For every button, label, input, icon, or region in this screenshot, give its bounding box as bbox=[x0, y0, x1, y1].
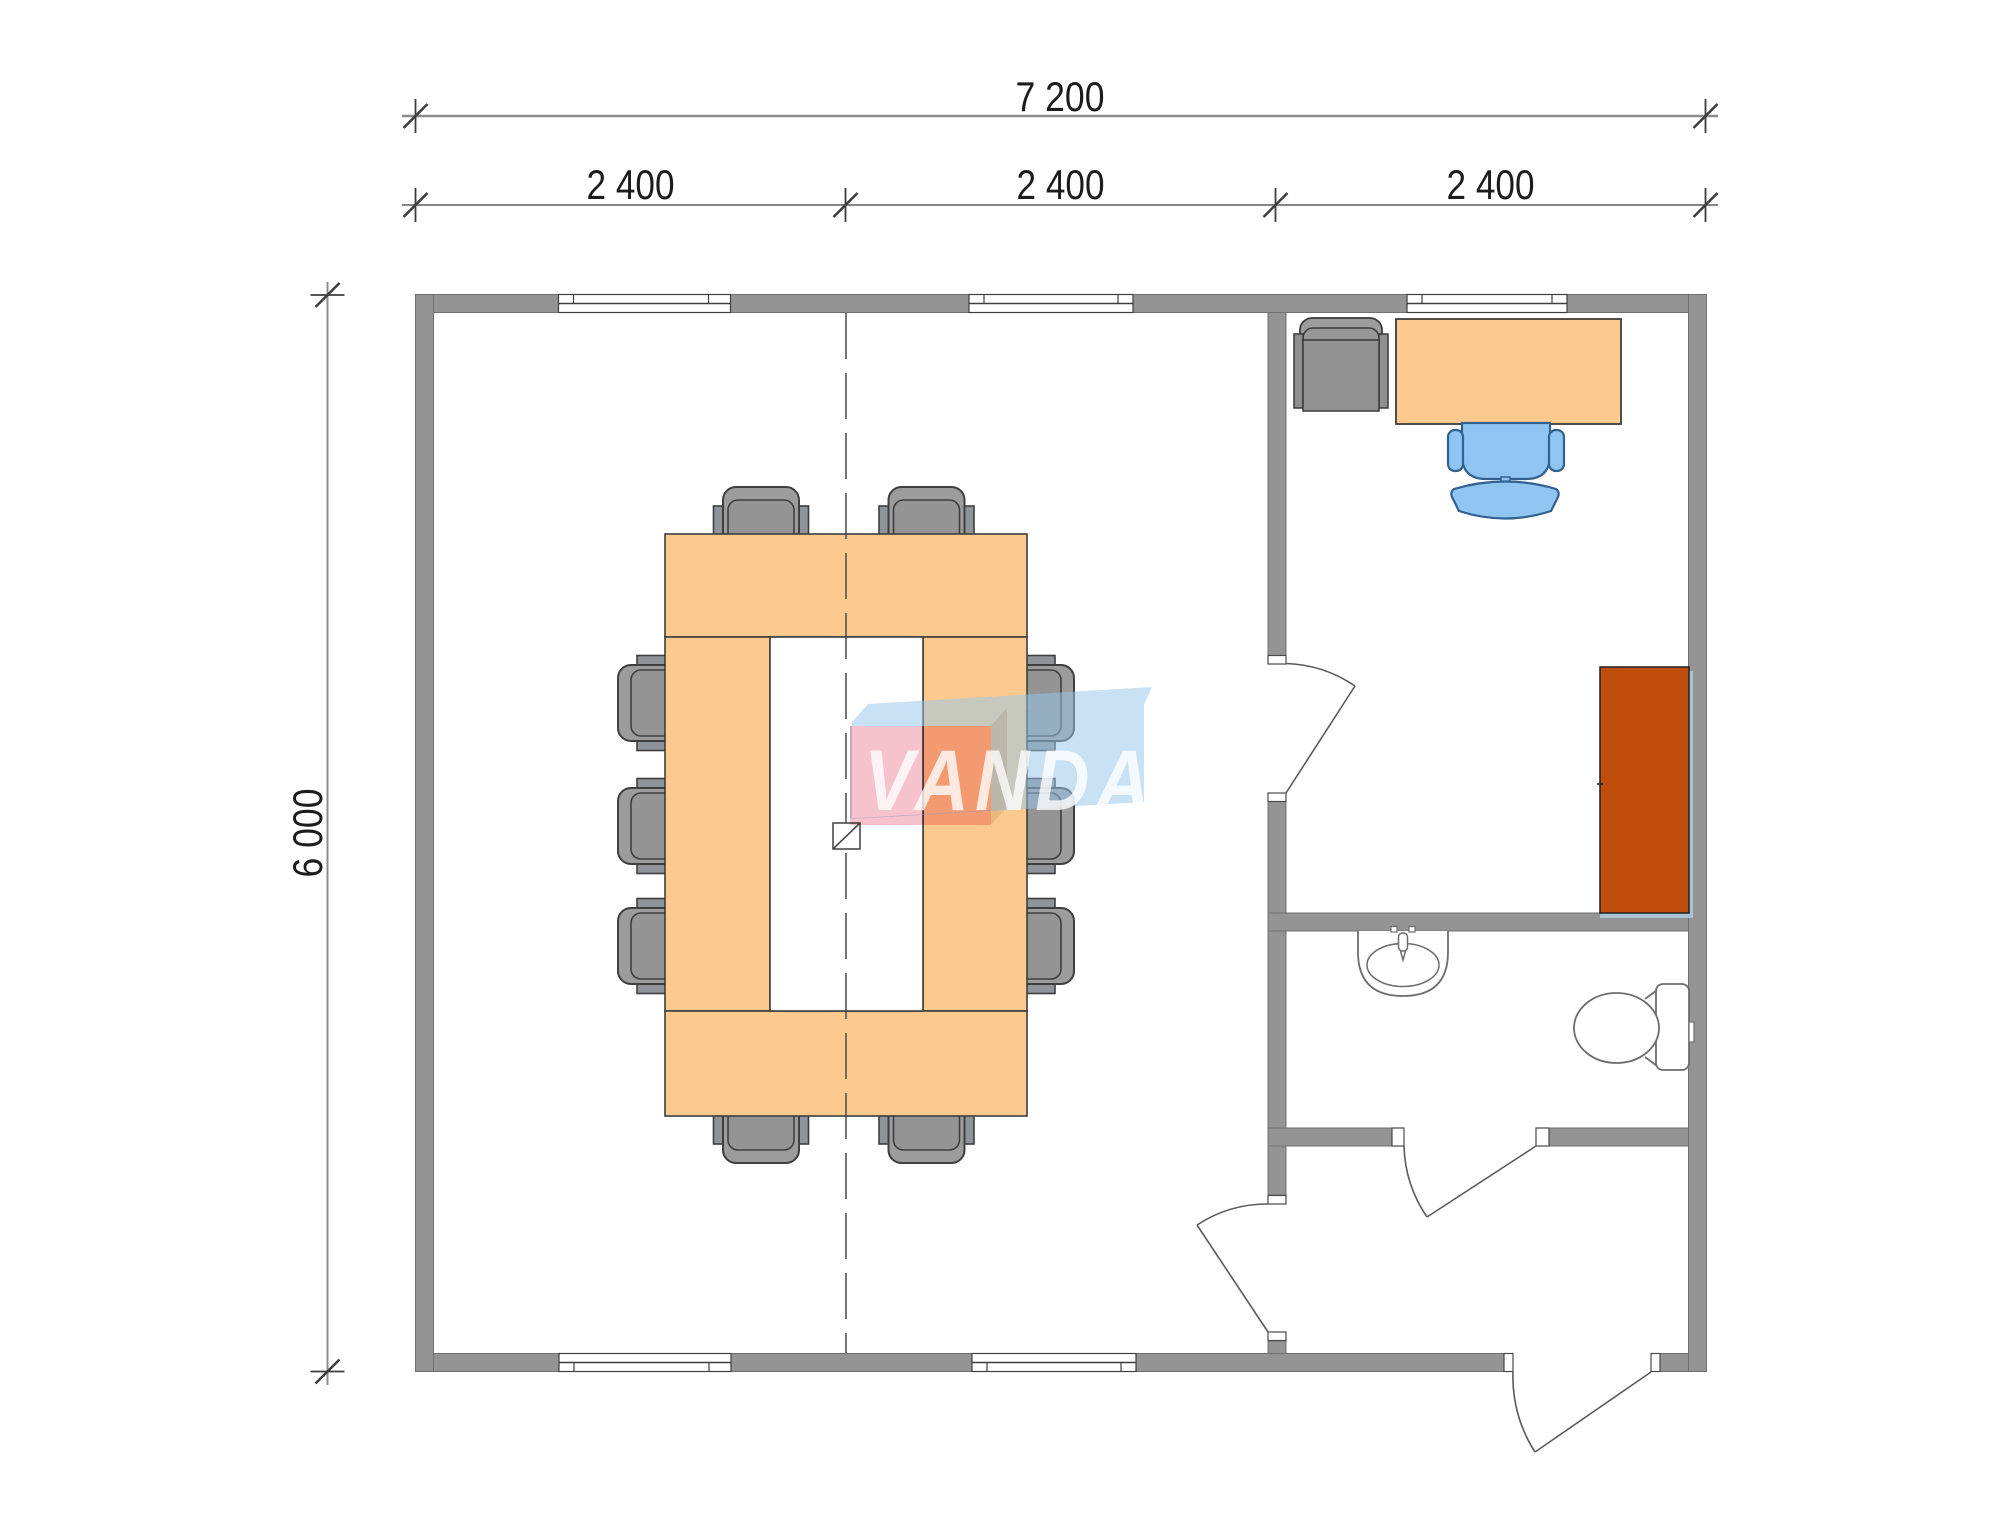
svg-text:7 200: 7 200 bbox=[1016, 73, 1105, 120]
svg-text:2 400: 2 400 bbox=[1447, 161, 1535, 208]
svg-text:2 400: 2 400 bbox=[587, 161, 675, 208]
svg-text:VANDA: VANDA bbox=[864, 733, 1156, 829]
svg-text:2 400: 2 400 bbox=[1017, 161, 1105, 208]
svg-text:6 000: 6 000 bbox=[284, 789, 331, 878]
